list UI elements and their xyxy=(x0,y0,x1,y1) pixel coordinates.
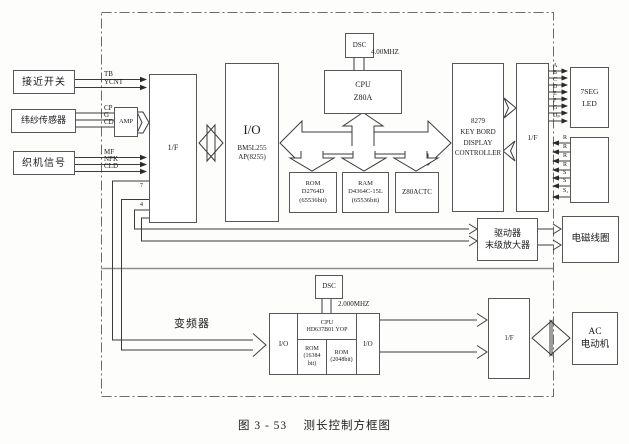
proximity-switch-label: 接近开关 xyxy=(22,76,66,89)
kdc-line2: KEY BORD xyxy=(460,127,495,138)
driver-line1: 驱动器 xyxy=(494,228,521,240)
cpu-top-model: Z80A xyxy=(354,92,373,105)
box-amp: AMP xyxy=(114,107,138,137)
interface-bottom-label: 1/F xyxy=(504,334,513,343)
mcu-rom2-size: (2048bit) xyxy=(330,357,352,365)
signal-label-4: 4 xyxy=(140,202,143,208)
mcu-rom1-size2: bit) xyxy=(308,361,316,369)
interface-right-label: 1/F xyxy=(527,133,537,143)
led-line2: LED xyxy=(582,98,597,109)
kdc-line4: CONTROLLER xyxy=(455,148,501,159)
box-io-8255: I/O BM5L255 AP(8255) xyxy=(225,63,279,222)
mcu-io-right: I/O xyxy=(356,314,379,374)
seg-label-d: D xyxy=(553,84,557,90)
box-weft-sensor: 纬纱传感器 xyxy=(11,109,76,133)
weft-sensor-label: 纬纱传感器 xyxy=(21,115,66,127)
interface-left-label: 1/F xyxy=(168,143,179,153)
seg-label-f: F xyxy=(553,98,556,104)
signal-label-7: 7 xyxy=(140,183,143,189)
box-8279-controller: 8279 KEY BORD DISPLAY CONTROLLER xyxy=(452,63,504,212)
key-label-r2: R xyxy=(563,144,567,150)
amp-arrow xyxy=(137,112,149,133)
box-cpu-z80a: CPU Z80A xyxy=(324,70,402,114)
block-diagram: 接近开关 纬纱传感器 织机信号 AMP 1/F I/O BM5L255 AP(8… xyxy=(0,0,629,444)
kdc-line3: DISPLAY xyxy=(464,138,493,149)
box-ram: RAM D4364C-15L (65536bit) xyxy=(342,172,389,213)
cpu-top-title: CPU xyxy=(355,79,371,92)
mcu-rom1-cell: ROM (16384 bit) xyxy=(298,340,327,374)
amp-label: AMP xyxy=(119,118,133,126)
inverter-label: 变频器 xyxy=(174,319,210,330)
seg-label-c: C xyxy=(553,77,557,83)
io-model: BM5L255 xyxy=(237,144,266,153)
mcu-io-right-label: I/O xyxy=(363,340,372,349)
ram-model: D4364C-15L xyxy=(348,188,383,196)
mcu-io-left: I/O xyxy=(270,314,298,374)
figure-caption: 图 3 - 53 测长控制方框图 xyxy=(0,417,629,433)
ac-motor-line2: 电动机 xyxy=(581,339,610,351)
signal-label-tb: TB xyxy=(104,71,113,78)
ac-motor-line1: AC xyxy=(588,326,601,338)
system-bus xyxy=(280,113,451,172)
key-label-r3: R xyxy=(563,153,567,159)
mcu-cpu-label: CPU xyxy=(321,319,334,327)
box-solenoid-coil: 电磁线圈 xyxy=(562,216,619,263)
clock-top-label: 4.00MHZ xyxy=(371,49,399,56)
signal-label-cld: CLD xyxy=(104,163,118,170)
rom-model: D2764D xyxy=(302,188,324,196)
seg-label-a: A xyxy=(553,63,557,69)
mcu-io-left-label: I/O xyxy=(279,340,288,349)
box-dsc-bottom: DSC xyxy=(315,275,343,299)
dsc-bottom-label: DSC xyxy=(322,282,336,291)
box-interface-bottom: 1/F xyxy=(488,298,530,379)
clock-bottom-label: 2.000MHZ xyxy=(338,301,369,308)
key-label-s2: S xyxy=(563,178,566,184)
key-label-s3: S₁ xyxy=(563,188,568,194)
box-ac-motor: AC 电动机 xyxy=(572,312,618,365)
box-keyboard xyxy=(570,137,609,203)
seg-label-b: B xyxy=(553,70,557,76)
seg-label-g: G xyxy=(553,105,557,111)
box-ctc: Z80ACTC xyxy=(395,172,439,213)
coil-label: 电磁线圈 xyxy=(571,233,609,245)
loom-signal-label: 织机信号 xyxy=(22,157,66,170)
box-dsc-top: DSC xyxy=(345,33,374,58)
rom-size: (65536bit) xyxy=(299,197,326,205)
ram-size: (65536bit) xyxy=(352,197,379,205)
seg-label-e: E xyxy=(553,91,557,97)
signal-label-cd: CD xyxy=(104,119,114,126)
key-label-r4: R xyxy=(563,162,567,168)
key-label-s1: S xyxy=(563,170,566,176)
io-type: AP(8255) xyxy=(238,153,266,162)
box-mcu: I/O CPU HD637B01 YOP ROM (16384 bit) ROM… xyxy=(269,313,380,375)
mcu-cpu-cell: CPU HD637B01 YOP xyxy=(298,314,356,340)
kdc-line1: 8279 xyxy=(471,116,485,127)
led-line1: 7SEG xyxy=(581,86,599,97)
rom-title: ROM xyxy=(306,180,321,188)
mcu-rom1-size1: (16384 xyxy=(304,353,321,361)
mcu-rom2-title: ROM xyxy=(335,350,349,358)
box-driver: 驱动器 末级放大器 xyxy=(477,218,538,261)
ctc-label: Z80ACTC xyxy=(402,188,432,197)
signal-label-ycnt: YCNT xyxy=(104,79,123,86)
io-title: I/O xyxy=(243,122,260,139)
box-loom-signal: 织机信号 xyxy=(13,151,75,175)
box-interface-right: 1/F xyxy=(516,63,549,212)
key-label-r1: R xyxy=(563,135,567,141)
box-proximity-switch: 接近开关 xyxy=(13,70,75,94)
driver-line2: 末级放大器 xyxy=(485,240,530,252)
mcu-rom2-cell: ROM (2048bit) xyxy=(327,340,356,374)
seg-label-dp: Dₚ xyxy=(553,113,560,119)
ram-title: RAM xyxy=(358,180,373,188)
dsc-top-label: DSC xyxy=(353,41,367,50)
box-rom: ROM D2764D (65536bit) xyxy=(289,172,337,213)
box-interface-left: 1/F xyxy=(149,74,197,223)
box-7seg-led: 7SEG LED xyxy=(570,67,609,128)
mcu-model-label: HD637B01 YOP xyxy=(307,327,348,335)
